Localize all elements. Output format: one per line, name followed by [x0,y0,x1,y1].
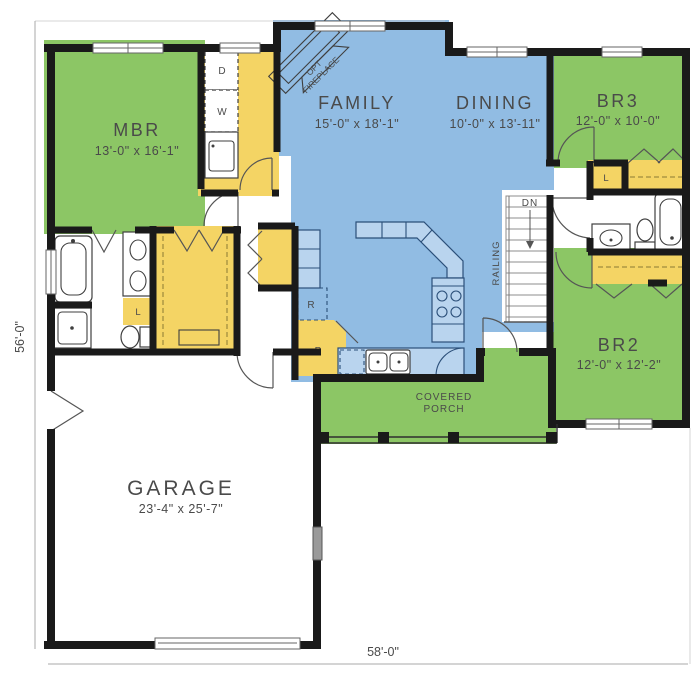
overall-depth-label: 56'-0" [13,321,27,353]
refrigerator-label: R [307,300,314,311]
master-vanity [123,232,153,296]
garage-label: GARAGE [127,477,235,500]
porch-post-4 [546,432,557,443]
br2-window [586,419,652,429]
family-window [315,21,385,31]
kitchen-sink-icon [366,350,410,374]
br3-window [602,47,642,57]
sink-drain-right [398,361,401,364]
hall-tub-drain [670,236,674,240]
master-shower-drain [70,326,74,330]
master-toilet-icon [121,326,139,348]
washer-label: W [217,107,227,118]
br3-label: BR3 [597,91,640,111]
family-room-area [273,20,449,156]
range-counter [432,278,464,342]
family-label: FAMILY [318,93,396,113]
laundry-fixtures: D W [205,50,238,178]
hall-toilet-icon [637,219,653,241]
railing-label: RAILING [491,240,502,285]
family-dims: 15'-0" x 18'-1" [315,117,399,131]
floor-plan-drawing: 56'-0" 58'-0" DN RAILING R P [0,0,700,700]
overall-width-label: 58'-0" [367,645,399,659]
garage-dims: 23'-4" x 25'-7" [139,502,223,516]
mbr-door [204,192,238,226]
garage-overhead-door [155,638,300,649]
laundry-window [220,43,260,53]
garage-side-door [313,527,322,560]
stair-run [506,196,550,322]
dining-dims: 10'-0" x 13'-11" [450,117,541,131]
hall-vanity [592,224,630,252]
master-toilet-tank [140,327,151,347]
mbr-window [93,43,163,53]
floor-plan-page: 56'-0" 58'-0" DN RAILING R P [0,0,700,700]
master-linen-label: L [135,307,140,318]
hall-linen-label: L [603,173,608,184]
master-bath-window [46,250,56,294]
br2-dims: 12'-0" x 12'-2" [577,358,661,372]
sink-drain-left [377,361,380,364]
master-bath-fixtures: L [54,232,153,348]
porch-label-1: COVERED [416,392,472,403]
mbr-label: MBR [113,120,161,140]
hall-sink-drain [610,239,613,242]
master-tub-faucet [71,239,75,243]
dining-window [467,47,527,57]
coat-closet-area [258,226,295,288]
laundry-faucet [212,145,215,148]
porch-post-2 [378,432,389,443]
garage-entry-door [237,352,273,388]
porch-label-2: PORCH [423,404,464,415]
garage-side-exterior-door [51,391,83,431]
porch-post-1 [318,432,329,443]
br2-label: BR2 [598,335,641,355]
tall-cabinet-column [298,230,320,288]
br3-dims: 12'-0" x 10'-0" [576,114,660,128]
stairs-down-label: DN [522,198,538,209]
dryer-label: D [218,66,225,77]
mbr-dims: 13'-0" x 16'-1" [95,144,179,158]
porch-post-3 [448,432,459,443]
hall-bath-door [552,198,590,238]
dining-label: DINING [456,93,534,113]
